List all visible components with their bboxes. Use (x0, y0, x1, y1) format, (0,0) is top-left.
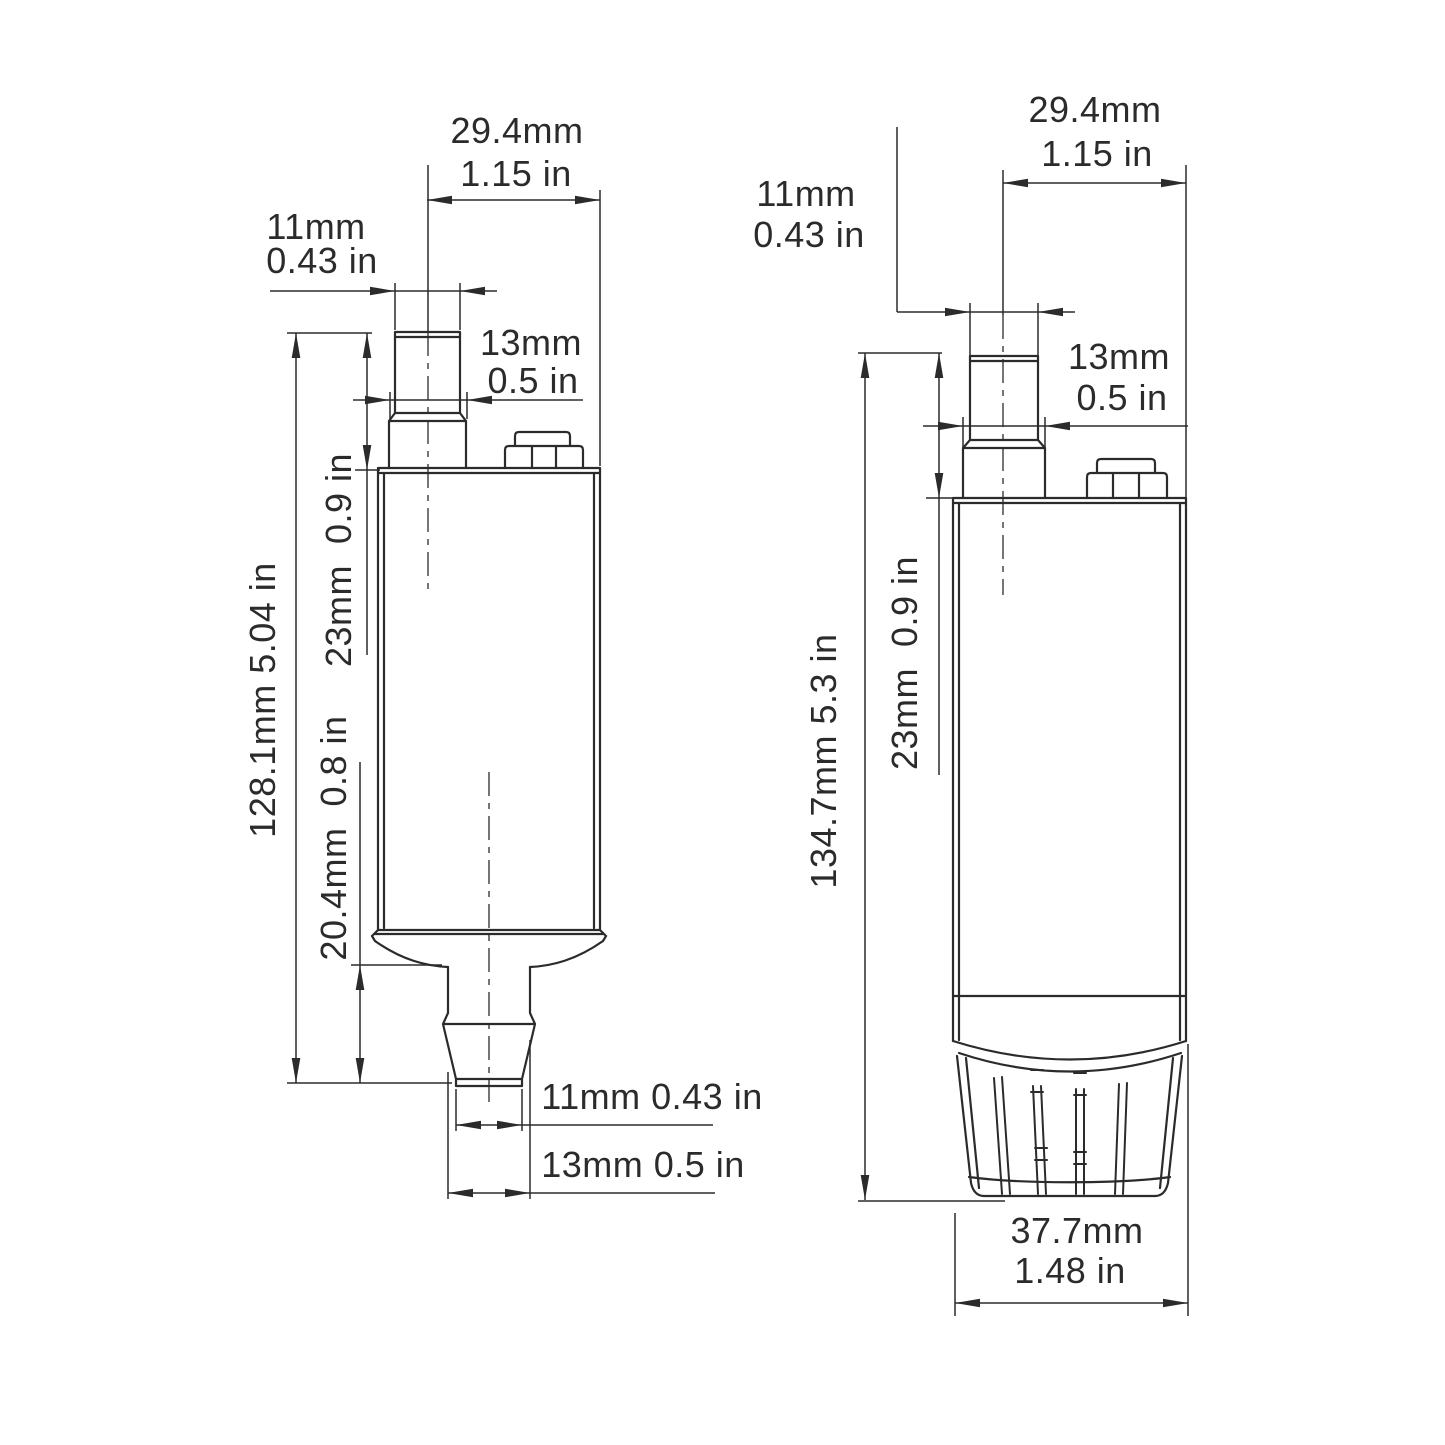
dim-right-top-width-in: 1.15 in (1041, 136, 1153, 172)
left-terminal-bolt (505, 432, 583, 468)
dim-right-total-height: 134.7mm 5.3 in (806, 633, 842, 888)
dim-right-strainer-width-mm: 37.7mm (1010, 1213, 1143, 1249)
right-bottom-cap (953, 1041, 1186, 1072)
right-terminal-bolt (1087, 459, 1167, 498)
extension-lines (287, 127, 1188, 1316)
dim-left-inlet-base-mm: 13mm (480, 325, 582, 361)
dim-right-inlet-od-in: 0.43 in (753, 217, 865, 253)
dim-left-top-width-mm: 29.4mm (450, 113, 583, 149)
right-inlet-tube (963, 356, 1045, 498)
left-view-outline (372, 332, 606, 1086)
dim-left-top-width-in: 1.15 in (460, 156, 572, 192)
dim-right-inlet-base-mm: 13mm (1068, 339, 1170, 375)
dimension-arrowheads (292, 179, 1188, 1308)
dim-left-outlet-height: 20.4mm 0.8 in (316, 715, 352, 960)
dim-right-inlet-base-in: 0.5 in (1076, 380, 1167, 416)
dim-right-inlet-height: 23mm 0.9 in (887, 556, 923, 770)
dimension-lines (270, 183, 1188, 1303)
dim-left-outlet-od: 11mm 0.43 in (541, 1079, 762, 1115)
dim-left-inlet-od-in: 0.43 in (266, 243, 378, 279)
dim-left-inlet-base-in: 0.5 in (487, 363, 578, 399)
dim-left-total-height: 128.1mm 5.04 in (245, 562, 281, 838)
right-strainer-frame (957, 1056, 1182, 1196)
dim-right-strainer-width-in: 1.48 in (1014, 1253, 1126, 1289)
pump-line-art (0, 0, 1445, 1445)
right-body (953, 498, 1186, 1041)
dim-left-outlet-base: 13mm 0.5 in (541, 1147, 745, 1183)
dim-right-top-width-mm: 29.4mm (1028, 92, 1161, 128)
right-strainer-ribs (994, 1070, 1127, 1194)
dim-right-inlet-od-mm: 11mm (756, 176, 855, 212)
technical-drawing-canvas: 29.4mm 1.15 in 11mm 0.43 in 13mm 0.5 in … (0, 0, 1445, 1445)
dim-left-inlet-height: 23mm 0.9 in (321, 453, 357, 667)
right-view-outline (953, 356, 1186, 1196)
